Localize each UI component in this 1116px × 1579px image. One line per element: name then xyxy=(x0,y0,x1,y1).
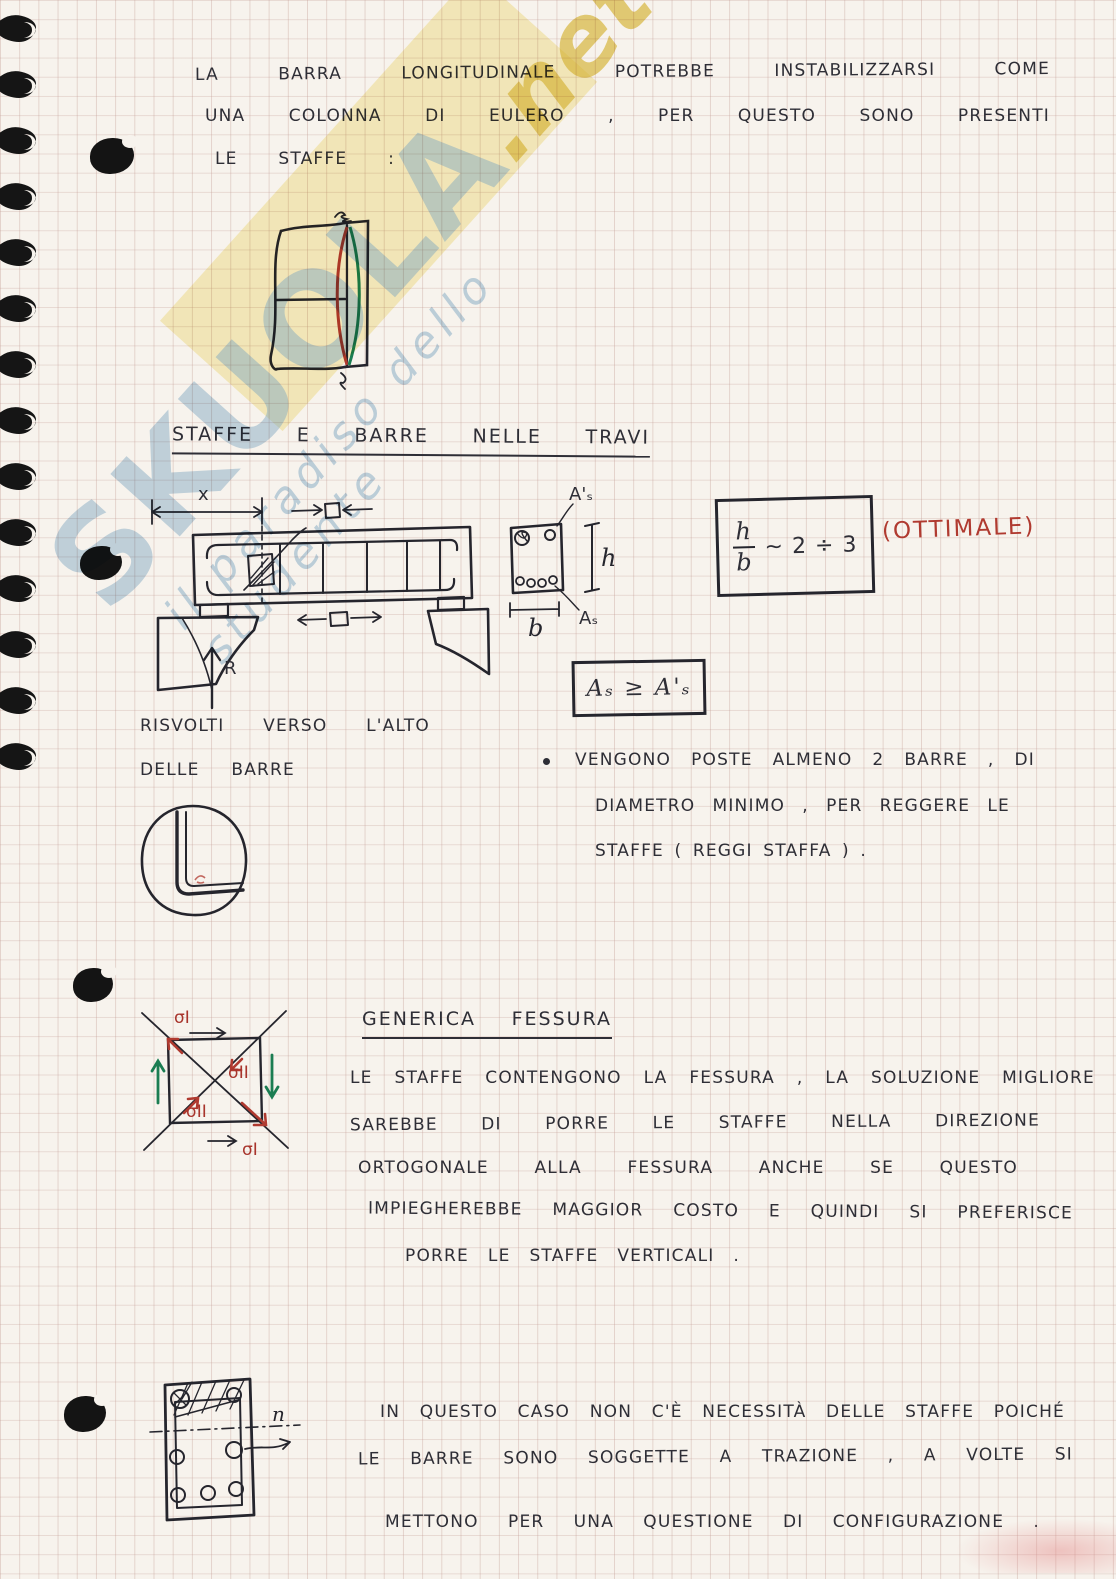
body-line: LE BARRE SONO SOGGETTE A TRAZIONE , A VO… xyxy=(358,1445,1073,1470)
bullet-line: VENGONO POSTE ALMENO 2 BARRE , DI xyxy=(575,750,1035,770)
punch-hole-highlight xyxy=(101,965,117,978)
sigma2-bottom-label: σII xyxy=(186,1102,207,1122)
hb-ratio-box: h b ~ 2 ÷ 3 xyxy=(715,495,876,597)
b-label: b xyxy=(528,614,543,642)
bullet-line: DIAMETRO MINIMO , PER REGGERE LE xyxy=(595,796,1010,816)
sigma2-mid-label: σII xyxy=(228,1063,249,1083)
punch-hole xyxy=(80,546,122,580)
scan-smudge xyxy=(955,1518,1116,1573)
body-line: IMPIEGHEREBBE MAGGIOR COSTO E QUINDI SI … xyxy=(368,1199,1073,1224)
a-bottom-label: Aₛ xyxy=(579,608,598,629)
bar-hook-sketch xyxy=(133,798,258,923)
as-rule-box: Aₛ ≥ A'ₛ xyxy=(572,659,707,717)
body-line: ORTOGONALE ALLA FESSURA ANCHE SE QUESTO xyxy=(358,1158,1018,1178)
section-heading: GENERICA FESSURA xyxy=(362,1008,612,1039)
hb-denominator: b xyxy=(736,550,752,576)
beam-cross-section: A'ₛ h Aₛ b xyxy=(495,478,680,658)
notebook-page: SKUOLA.net il paradiso dello studente LA… xyxy=(0,0,1116,1579)
hb-fraction: h b xyxy=(732,519,755,576)
punch-hole xyxy=(90,138,134,174)
h-label: h xyxy=(601,544,616,572)
a-prime-label: A'ₛ xyxy=(569,484,593,505)
punch-hole-highlight xyxy=(122,135,138,148)
reaction-label: R xyxy=(224,658,237,679)
neutral-axis-label: n xyxy=(272,1402,285,1426)
punch-hole-highlight xyxy=(94,1393,110,1406)
punch-hole xyxy=(64,1396,106,1432)
column-buckling-sketch xyxy=(255,205,415,390)
intro-line: LA BARRA LONGITUDINALE POTREBBE INSTABIL… xyxy=(195,59,1050,85)
as-rule-text: Aₛ ≥ A'ₛ xyxy=(586,674,691,702)
dim-x-label: x xyxy=(198,484,209,505)
punch-hole-highlight xyxy=(110,543,126,556)
intro-line: UNA COLONNA DI EULERO , PER QUESTO SONO … xyxy=(205,106,1050,126)
body-line: SAREBBE DI PORRE LE STAFFE NELLA DIREZIO… xyxy=(350,1111,1040,1136)
sigma1-top-label: σI xyxy=(174,1008,190,1028)
risvolti-note: RISVOLTI VERSO L'ALTO xyxy=(140,716,430,736)
body-line: IN QUESTO CASO NON C'È NECESSITÀ DELLE S… xyxy=(380,1402,1065,1422)
stress-element-diagram: σI σII σII σI xyxy=(130,993,320,1168)
watermark-suffix: .net xyxy=(447,0,675,181)
body-line: PORRE LE STAFFE VERTICALI . xyxy=(405,1246,740,1266)
punch-hole xyxy=(73,968,113,1002)
spiral-binding xyxy=(0,6,50,796)
hb-relation: ~ 2 ÷ 3 xyxy=(764,532,857,559)
hb-numerator: h xyxy=(735,519,751,545)
intro-line: LE STAFFE : xyxy=(215,149,395,169)
buckled-bar-red xyxy=(337,227,347,365)
sigma1-bottom-label: σI xyxy=(242,1140,258,1160)
body-line: LE STAFFE CONTENGONO LA FESSURA , LA SOL… xyxy=(350,1068,1095,1088)
section-heading: STAFFE E BARRE NELLE TRAVI xyxy=(172,423,650,457)
risvolti-note: DELLE BARRE xyxy=(140,760,295,780)
buckled-bar-green xyxy=(349,227,359,365)
bullet-line: STAFFE ( REGGI STAFFA ) . xyxy=(595,841,867,861)
bullet-dot xyxy=(543,758,550,765)
body-line: METTONO PER UNA QUESTIONE DI CONFIGURAZI… xyxy=(385,1512,1040,1532)
hb-optimal-note: (OTTIMALE) xyxy=(882,513,1036,544)
tension-cross-section: n xyxy=(150,1365,390,1575)
